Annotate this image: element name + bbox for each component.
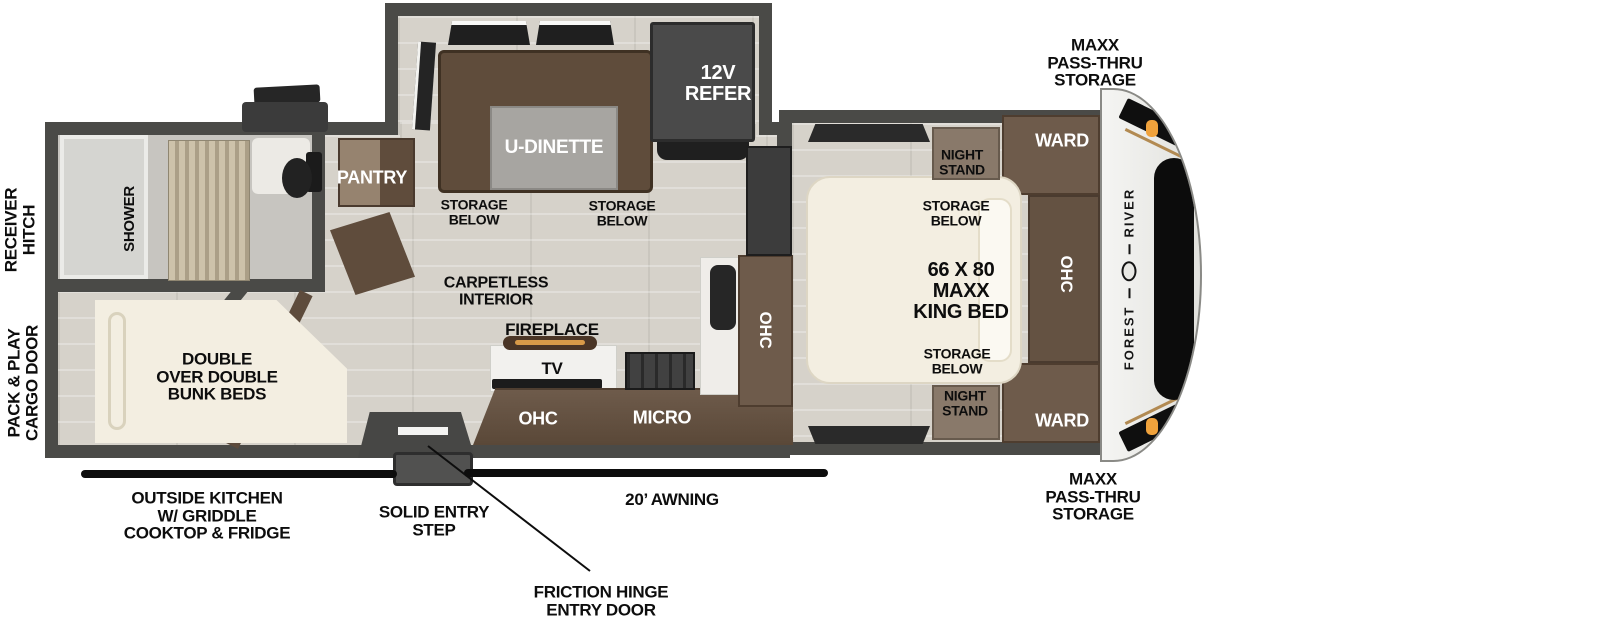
label-entry-step: SOLID ENTRY STEP [379, 503, 489, 538]
camp-chair-seat [242, 102, 328, 132]
refrigerator-base [657, 142, 749, 160]
label-ohc-galley-side: OHC [756, 312, 774, 349]
label-storage-below-right: STORAGE BELOW [589, 198, 656, 227]
logo-dash-1 [1128, 289, 1130, 299]
label-night-stand-top: NIGHT STAND [939, 147, 985, 176]
label-receiver-hitch: RECEIVER HITCH [2, 188, 37, 273]
stove-cooktop [625, 352, 695, 390]
label-ward-bottom: WARD [1035, 412, 1089, 431]
label-storage-below-bed-top: STORAGE BELOW [923, 198, 990, 227]
label-outside-kitchen: OUTSIDE KITCHEN W/ GRIDDLE COOKTOP & FRI… [124, 489, 290, 542]
forest-river-logo: FOREST RIVER [1122, 188, 1137, 370]
label-pantry: PANTRY [337, 169, 407, 188]
marker-light-bottom [1146, 418, 1158, 435]
rv-floorplan: FOREST RIVER RECEIVER HITCH PACK & PLAY … [0, 0, 1600, 626]
accordion-shower-curtain [168, 140, 250, 281]
label-tv: TV [541, 360, 562, 378]
label-ohc-galley: OHC [518, 410, 557, 429]
slideout-window-2 [536, 21, 614, 45]
label-u-dinette: U-DINETTE [505, 138, 604, 158]
tall-cabinet [746, 146, 792, 256]
kitchen-sink [710, 265, 736, 330]
label-storage-below-left: STORAGE BELOW [441, 197, 508, 226]
bunk-pillow-outline [108, 312, 126, 430]
label-awning: 20’ AWNING [625, 491, 719, 509]
label-micro: MICRO [633, 409, 692, 428]
label-refer: 12V REFER [685, 63, 751, 105]
label-ohc-bedroom: OHC [1057, 256, 1075, 293]
label-passthru-top: MAXX PASS-THRU STORAGE [1047, 36, 1142, 89]
label-king-bed: 66 X 80 MAXX KING BED [913, 260, 1008, 322]
label-fireplace: FIREPLACE [505, 321, 599, 339]
logo-word-forest: FOREST [1122, 306, 1137, 371]
wardrobe-top [1002, 115, 1100, 195]
label-bunk-beds: DOUBLE OVER DOUBLE BUNK BEDS [156, 350, 277, 403]
windshield [1154, 158, 1194, 400]
label-ward-top: WARD [1035, 132, 1089, 151]
logo-word-river: RIVER [1122, 188, 1137, 238]
label-passthru-bottom: MAXX PASS-THRU STORAGE [1045, 470, 1140, 523]
label-entry-door: FRICTION HINGE ENTRY DOOR [534, 583, 669, 618]
entry-landing-strip [398, 427, 448, 435]
label-night-stand-bottom: NIGHT STAND [942, 388, 988, 417]
label-cargo-door: PACK & PLAY CARGO DOOR [5, 325, 40, 441]
label-shower: SHOWER [122, 186, 138, 252]
toilet-bowl [282, 158, 312, 198]
tv-screen [492, 379, 602, 389]
bedroom-window-bottom [808, 426, 930, 444]
label-storage-below-bed-bottom: STORAGE BELOW [924, 346, 991, 375]
forest-river-emblem [1122, 262, 1137, 282]
bedroom-window-top [808, 124, 930, 142]
slideout-window-1 [448, 21, 530, 45]
entry-step [393, 452, 473, 486]
front-cap: FOREST RIVER [1100, 88, 1202, 462]
logo-dash-2 [1128, 245, 1130, 255]
marker-light-top [1146, 120, 1158, 137]
fireplace-flame [515, 340, 585, 345]
label-carpetless: CARPETLESS INTERIOR [444, 275, 549, 308]
